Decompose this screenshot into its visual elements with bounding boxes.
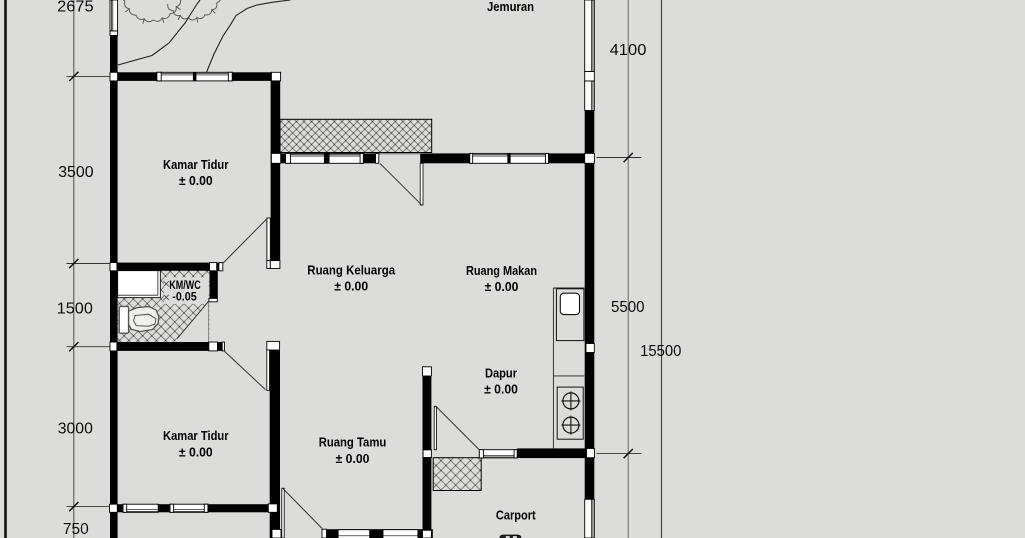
svg-text:Kamar Tidur: Kamar Tidur [163,158,229,172]
svg-text:Dapur: Dapur [485,367,517,381]
svg-text:± 0.00: ± 0.00 [336,452,370,466]
svg-text:2675: 2675 [57,0,94,15]
svg-text:3000: 3000 [58,421,93,438]
svg-text:± 0.00: ± 0.00 [484,383,518,397]
svg-text:± 0.00: ± 0.00 [485,280,519,294]
svg-text:± 0.00: ± 0.00 [179,174,213,188]
svg-text:Kamar Tidur: Kamar Tidur [163,429,229,443]
svg-text:750: 750 [63,521,89,538]
svg-text:Ruang Tamu: Ruang Tamu [319,436,387,450]
svg-text:3500: 3500 [58,164,94,181]
svg-text:Jemuran: Jemuran [487,0,534,14]
svg-text:5500: 5500 [611,299,645,316]
svg-text:± 0.00: ± 0.00 [179,445,213,459]
svg-text:Carport: Carport [496,508,537,522]
svg-text:± 0.00: ± 0.00 [334,280,368,294]
svg-text:-0.05: -0.05 [172,291,197,304]
svg-text:Ruang Makan: Ruang Makan [466,264,537,278]
svg-text:Ruang Keluarga: Ruang Keluarga [307,264,396,278]
svg-text:15500: 15500 [640,343,681,360]
svg-text:4100: 4100 [610,42,647,59]
svg-text:1500: 1500 [57,300,93,317]
